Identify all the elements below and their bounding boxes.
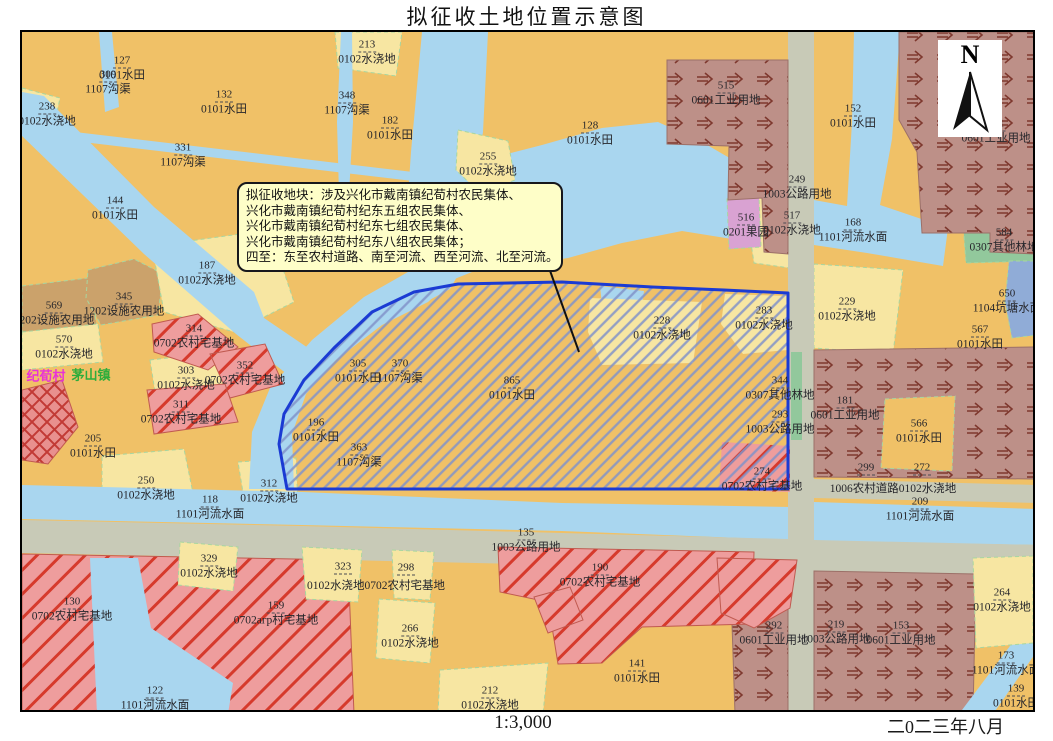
parcel-number: 650 [973,288,1035,300]
parcel-number: 865 [489,375,535,387]
parcel-label: 2550102水浇地 [459,151,517,178]
dash-divider [137,488,155,489]
parcel-number: 515 [692,80,761,92]
parcel-label: 2280102水浇地 [633,315,691,342]
parcel-number: 249 [763,174,832,186]
parcel-label: 2660102水浇地 [381,623,439,650]
parcel-label: 2920601工业用地 [740,620,809,647]
parcel-number: 122 [121,685,190,697]
landuse-type: 1107沟渠 [336,457,382,469]
dash-divider [55,347,73,348]
parcel-label: 1820101水田 [367,115,413,142]
acquisition-callout-box: 拟征收地块：涉及兴化市戴南镇纪荀村农民集体、兴化市戴南镇纪荀村纪东五组农民集体、… [237,182,563,272]
parcel-label: 2091101河流水面 [886,496,955,523]
dash-divider [481,698,499,699]
callout-line: 兴化市戴南镇纪荀村纪东七组农民集体、 [246,219,554,235]
parcel-label: 5691202设施农用地 [20,300,94,327]
landuse-type: 0102水浇地 [338,54,396,66]
parcel-number: 213 [338,39,396,51]
dash-divider [381,128,399,129]
landuse-type: 0101水田 [293,432,339,444]
dash-divider [115,304,133,305]
landuse-type: 0601工业用地 [811,410,880,422]
parcel-number: 196 [293,417,339,429]
landuse-type: 0601工业用地 [867,635,936,647]
parcel-number: 293 [746,409,815,421]
landuse-type: 1202设施农用地 [20,315,94,327]
dash-divider [765,633,783,634]
parcel-label: 2050101水田 [70,433,116,460]
parcel-number: 153 [867,620,936,632]
dash-divider [971,337,989,338]
parcel-label: 1390101水田 [993,683,1035,710]
parcel-label: 1900702农村宅基地 [560,562,641,589]
dash-divider [998,301,1016,302]
parcel-number: 159 [234,600,319,612]
place-name: 茅山镇 [71,365,110,384]
page-title: 拟征收土地位置示意图 [0,1,1053,31]
parcel-number: 323 [334,561,352,573]
landuse-type: 0307其他林地 [970,242,1036,254]
parcel-number: 141 [614,658,660,670]
parcel-label: 5700102水浇地 [35,334,93,361]
dash-divider [146,698,164,699]
landuse-type: 1107沟渠 [377,373,423,385]
landuse-type: 1003公路用地 [492,542,561,554]
parcel-number: 348 [324,90,370,102]
landuse-type: 0307其他林地 [746,390,815,402]
parcel-label: 1410101水田 [614,658,660,685]
landuse-type: 0101水田 [993,698,1035,710]
dash-divider [857,475,875,476]
landuse-type: 0102水浇地 [117,490,175,502]
landuse-type: 0102水浇地 [973,602,1031,614]
parcel-number: 566 [896,418,942,430]
parcel-number: 266 [381,623,439,635]
dash-divider [479,164,497,165]
landuse-type: 0101水田 [70,448,116,460]
parcel-number: 567 [957,324,1003,336]
landuse-type: 0101水田 [201,104,247,116]
parcel-number: 312 [240,478,298,490]
landuse-type: 0101水田 [896,433,942,445]
parcel-number: 331 [160,142,206,154]
parcel-number: 187 [178,260,236,272]
parcel-number: 128 [567,120,613,132]
landuse-type: 1104坑塘水面 [973,303,1035,315]
parcel-number: 255 [459,151,517,163]
dash-divider [753,479,771,480]
callout-line: 四至：东至农村道路、南至河流、西至河流、北至河流。 [246,250,554,266]
parcel-label: 1530601工业用地 [867,620,936,647]
parcel-number: 229 [818,296,876,308]
dash-divider [827,632,845,633]
callout-line: 拟征收地块：涉及兴化市戴南镇纪荀村农民集体、 [246,188,554,204]
parcel-label: 1181101河流水面 [176,494,245,521]
landuse-type: 0101水田 [367,130,413,142]
parcel-label: 5840307其他林地 [970,227,1036,254]
landuse-type: 0201果园 [723,227,769,239]
parcel-label: 1960101水田 [293,417,339,444]
dash-divider [307,430,325,431]
landuse-type: 0601工业用地 [740,635,809,647]
parcel-number: 311 [141,399,222,411]
landuse-type: 0702农村宅基地 [32,611,113,623]
landuse-type: 0102水浇地 [35,349,93,361]
parcel-number: 152 [830,103,876,115]
parcel-number: 584 [970,227,1036,239]
landuse-type: 0102水浇地 [763,225,821,237]
parcel-label: 1440101水田 [92,195,138,222]
parcel-number: 305 [335,358,381,370]
landuse-type: 0102水浇地 [818,311,876,323]
dash-divider [911,509,929,510]
parcel-label: 3290102水浇地 [180,553,238,580]
parcel-number: 219 [802,619,871,631]
landuse-type: 0102水浇地 [461,700,519,712]
parcel-number: 190 [560,562,641,574]
parcel-label: 3520702农村宅基地 [205,360,286,387]
callout-line: 兴化市戴南镇纪荀村纪东八组农民集体； [246,235,554,251]
parcel-label: 3120102水浇地 [240,478,298,505]
landuse-type: 0101水田 [957,339,1003,351]
dash-divider [200,566,218,567]
parcel-label: 3440307其他林地 [746,375,815,402]
landuse-type: 0101水田 [489,390,535,402]
dash-divider [503,388,521,389]
dash-divider [198,273,216,274]
parcel-number: 264 [973,587,1031,599]
dash-divider [215,102,233,103]
parcel-label: 1731101河流水面 [972,650,1035,677]
parcel-labels-layer: 1270101水田3091107沟渠2380102水浇地2130102水浇地13… [22,32,1033,710]
parcel-number: 292 [740,620,809,632]
parcel-number: 181 [811,395,880,407]
dash-divider [106,208,124,209]
dash-divider [391,371,409,372]
parcel-number: 168 [819,217,888,229]
parcel-label: 1300702农村宅基地 [32,596,113,623]
parcel-number: 298 [397,562,415,574]
parcel-label: 298 [397,562,415,577]
parcel-number: 238 [20,101,76,113]
dash-divider [892,633,910,634]
landuse-type: 1003公路用地 [802,634,871,646]
parcel-label: 3110702农村宅基地 [141,399,222,426]
parcel-label: 1590702агр村宅基地 [234,600,319,627]
parcel-number: 182 [367,115,413,127]
dash-divider [844,230,862,231]
landuse-type: 0102水浇地 [20,116,76,128]
parcel-number: 209 [886,496,955,508]
landuse-type: 0101水田 [92,210,138,222]
north-letter: N [938,42,1002,68]
parcel-label: 8650101水田 [489,375,535,402]
parcel-number: 127 [99,55,145,67]
parcel-number: 144 [92,195,138,207]
parcel-number: 250 [117,475,175,487]
landuse-type: 0102水浇地 [459,166,517,178]
parcel-number: 516 [723,212,769,224]
dash-divider [401,636,419,637]
parcel-label: 5150601工业用地 [692,80,761,107]
dash-divider [838,309,856,310]
landuse-type: 0101水田 [567,135,613,147]
landuse-type: 0702农村宅基地 [560,577,641,589]
land-acquisition-map-page: 拟征收土地位置示意图 [0,0,1053,741]
landuse-type: 1101河流水面 [972,665,1035,677]
place-name: 纪荀村 [26,366,65,385]
parcel-number: 205 [70,433,116,445]
parcel-number: 570 [35,334,93,346]
landuse-type: 0702агр村宅基地 [234,615,319,627]
parcel-label: 2931003公路用地 [746,409,815,436]
parcel-label: 3451202设施农用地 [84,291,165,318]
parcel-label: 1280101水田 [567,120,613,147]
parcel-label: 1221101河流水面 [121,685,190,712]
dash-divider [38,114,56,115]
dash-divider [334,574,352,575]
dash-divider [913,475,931,476]
landuse-type: 1101河流水面 [121,700,190,712]
parcel-label: 323 [334,561,352,576]
dash-divider [236,373,254,374]
dash-divider [995,240,1013,241]
parcel-number: 283 [735,305,793,317]
dash-divider [997,663,1015,664]
dash-divider [771,388,789,389]
landuse-type: 1107沟渠 [85,84,131,96]
landuse-type: 0102水浇地 [180,568,238,580]
landuse-type: 1006农村道路0102水浇地 [830,483,957,495]
parcel-label: 1870102水浇地 [178,260,236,287]
landuse-type: 0102水浇地 [240,493,298,505]
parcel-label: 2290102水浇地 [818,296,876,323]
dash-divider [349,371,367,372]
parcel-label: 299 [857,462,875,477]
dash-divider [174,155,192,156]
parcel-label: 3631107沟渠 [336,442,382,469]
parcel-label: 5670101水田 [957,324,1003,351]
dash-divider [755,318,773,319]
dash-divider [350,455,368,456]
parcel-label: 1320101水田 [201,89,247,116]
landuse-type: 0102水浇地 [735,320,793,332]
parcel-label: 2491003公路用地 [763,174,832,201]
landuse-type: 0102水浇地 [178,275,236,287]
parcel-label: 1520101水田 [830,103,876,130]
dash-divider [177,378,195,379]
landuse-type: 0102水浇地0702农村宅基地 [307,580,445,592]
map-date: 二0二三年八月 [858,713,1033,739]
parcel-label: 2500102水浇地 [117,475,175,502]
parcel-number: 274 [722,466,803,478]
landuse-type: 1101河流水面 [886,511,955,523]
parcel-number: 139 [993,683,1035,695]
parcel-label: 2740702农村宅基地 [722,466,803,493]
parcel-label: 3050101水田 [335,358,381,385]
parcel-label: 272 [913,462,931,477]
landuse-type: 1101河流水面 [819,232,888,244]
dash-divider [783,223,801,224]
landuse-type: 1003公路用地 [746,424,815,436]
dash-divider [185,336,203,337]
parcel-label: 3140702农村宅基地 [154,323,235,350]
dash-divider [628,671,646,672]
compass-needle-icon [938,68,1002,136]
landuse-type: 0702农村宅基地 [154,338,235,350]
parcel-number: 370 [377,358,423,370]
parcel-label: 0102水浇地0702农村宅基地 [307,580,445,592]
parcel-number: 329 [180,553,238,565]
parcel-label: 3701107沟渠 [377,358,423,385]
dash-divider [267,613,285,614]
parcel-number: 352 [205,360,286,372]
parcel-label: 2640102水浇地 [973,587,1031,614]
callout-text: 拟征收地块：涉及兴化市戴南镇纪荀村农民集体、兴化市戴南镇纪荀村纪东五组农民集体、… [246,188,554,266]
landuse-type: 0702农村宅基地 [722,481,803,493]
landuse-type: 1003公路用地 [763,189,832,201]
parcel-label: 2830102水浇地 [735,305,793,332]
dash-divider [993,600,1011,601]
parcel-label: 5160201果园 [723,212,769,239]
parcel-number: 130 [32,596,113,608]
parcel-label: 1681101河流水面 [819,217,888,244]
landuse-type: 0101水田 [335,373,381,385]
dash-divider [581,133,599,134]
dash-divider [260,491,278,492]
landuse-type: 1202设施农用地 [84,306,165,318]
dash-divider [591,575,609,576]
parcel-number: 303 [157,365,215,377]
dash-divider [63,609,81,610]
parcel-number: 309 [85,69,131,81]
dash-divider [338,103,356,104]
parcel-number: 569 [20,300,94,312]
landuse-type: 1107沟渠 [324,105,370,117]
parcel-number: 314 [154,323,235,335]
dash-divider [201,507,219,508]
parcel-label: 5170102水浇地 [763,210,821,237]
parcel-number: 132 [201,89,247,101]
callout-line: 兴化市戴南镇纪荀村纪东五组农民集体、 [246,204,554,220]
dash-divider [653,328,671,329]
parcel-label: 3481107沟渠 [324,90,370,117]
parcel-label: 2130102水浇地 [338,39,396,66]
parcel-label: 3311107沟渠 [160,142,206,169]
parcel-label: 3030102水浇地 [157,365,215,392]
dash-divider [737,225,755,226]
parcel-number: 344 [746,375,815,387]
dash-divider [99,82,117,83]
parcel-number: 345 [84,291,165,303]
dash-divider [836,408,854,409]
landuse-type: 1107沟渠 [160,157,206,169]
parcel-number: 135 [492,527,561,539]
parcel-label: 1810601工业用地 [811,395,880,422]
dash-divider [771,422,789,423]
dash-divider [910,431,928,432]
parcel-number: 299 [857,462,875,474]
dash-divider [172,412,190,413]
dash-divider [358,52,376,53]
parcel-number: 363 [336,442,382,454]
north-arrow: N [938,40,1002,137]
landuse-type: 0101水田 [614,673,660,685]
parcel-number: 517 [763,210,821,222]
dash-divider [788,187,806,188]
landuse-type: 0702农村宅基地 [141,414,222,426]
parcel-number: 272 [913,462,931,474]
parcel-label: 2380102水浇地 [20,101,76,128]
dash-divider [517,540,535,541]
parcel-label: 6501104坑塘水面 [973,288,1035,315]
map-scale: 1:3,000 [448,712,598,734]
parcel-number: 228 [633,315,691,327]
landuse-type: 0102水浇地 [633,330,691,342]
landuse-type: 0702农村宅基地 [205,375,286,387]
map-frame: 1270101水田3091107沟渠2380102水浇地2130102水浇地13… [20,30,1035,712]
landuse-type: 0101水田 [830,118,876,130]
parcel-number: 118 [176,494,245,506]
dash-divider [84,446,102,447]
parcel-label: 1006农村道路0102水浇地 [830,483,957,495]
landuse-type: 1101河流水面 [176,509,245,521]
parcel-number: 212 [461,685,519,697]
dash-divider [397,575,415,576]
landuse-type: 0102水浇地 [157,380,215,392]
dash-divider [45,313,63,314]
landuse-type: 0601工业用地 [692,95,761,107]
dash-divider [717,93,735,94]
parcel-label: 2191003公路用地 [802,619,871,646]
dash-divider [844,116,862,117]
parcel-label: 1351003公路用地 [492,527,561,554]
parcel-number: 173 [972,650,1035,662]
landuse-type: 0102水浇地 [381,638,439,650]
dash-divider [1007,696,1025,697]
parcel-label: 2120102水浇地 [461,685,519,712]
parcel-label: 3091107沟渠 [85,69,131,96]
parcel-label: 5660101水田 [896,418,942,445]
